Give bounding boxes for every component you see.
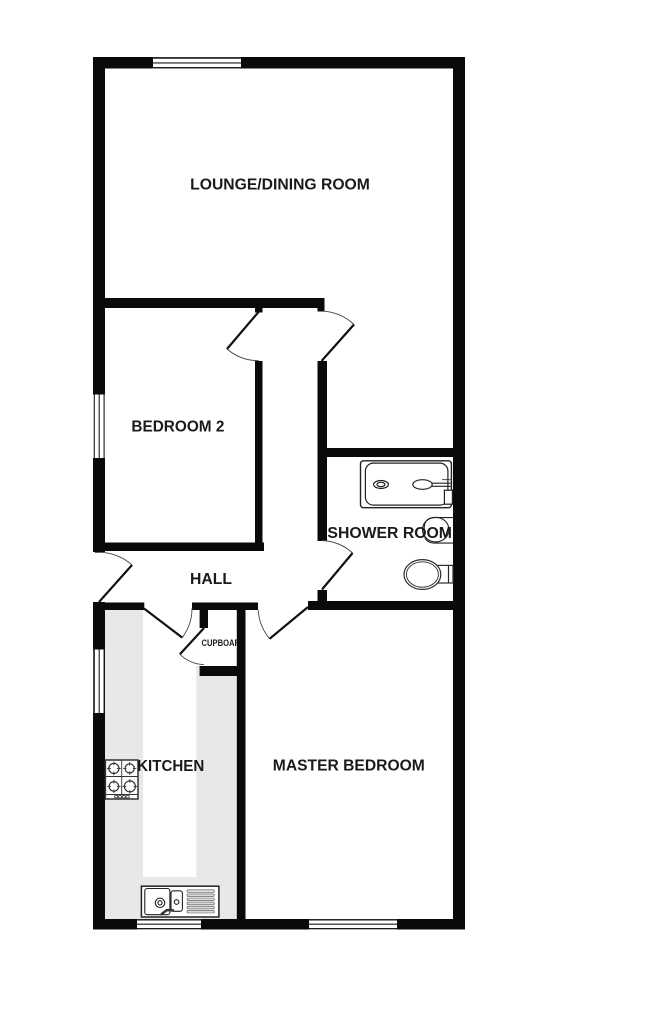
svg-text:SHOWER ROOM: SHOWER ROOM [327, 525, 452, 542]
svg-text:HALL: HALL [190, 571, 232, 588]
svg-text:KITCHEN: KITCHEN [137, 758, 204, 775]
svg-text:LOUNGE/DINING ROOM: LOUNGE/DINING ROOM [190, 177, 370, 194]
svg-text:BEDROOM 2: BEDROOM 2 [131, 419, 224, 436]
svg-text:MASTER BEDROOM: MASTER BEDROOM [273, 758, 425, 775]
